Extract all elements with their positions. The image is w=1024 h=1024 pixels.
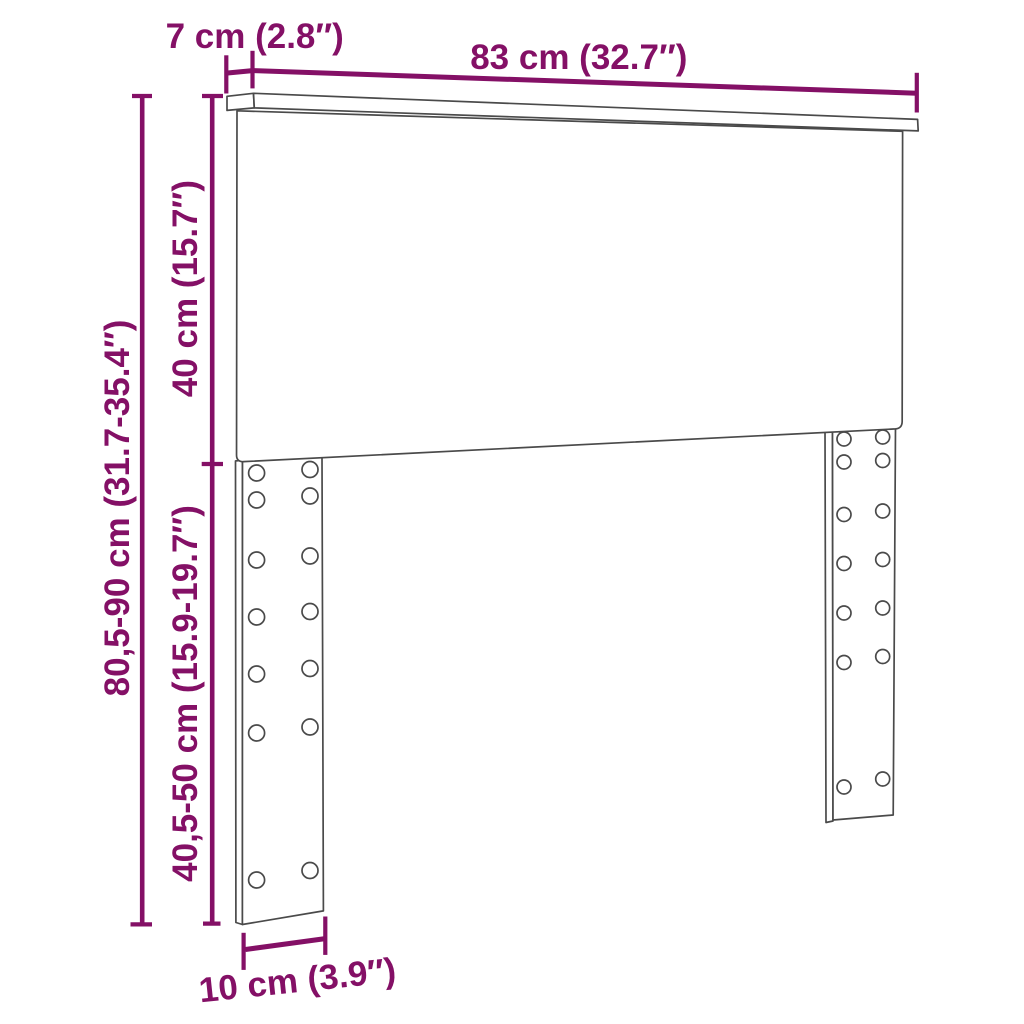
svg-text:10 cm (3.9″): 10 cm (3.9″) bbox=[197, 951, 398, 1010]
svg-text:83 cm (32.7″): 83 cm (32.7″) bbox=[470, 38, 687, 77]
svg-text:40 cm (15.7″): 40 cm (15.7″) bbox=[166, 180, 205, 397]
svg-text:7 cm (2.8″): 7 cm (2.8″) bbox=[166, 17, 344, 56]
svg-text:40,5-50 cm (15.9-19.7″): 40,5-50 cm (15.9-19.7″) bbox=[166, 505, 205, 882]
svg-text:80,5-90 cm (31.7-35.4″): 80,5-90 cm (31.7-35.4″) bbox=[98, 320, 137, 697]
